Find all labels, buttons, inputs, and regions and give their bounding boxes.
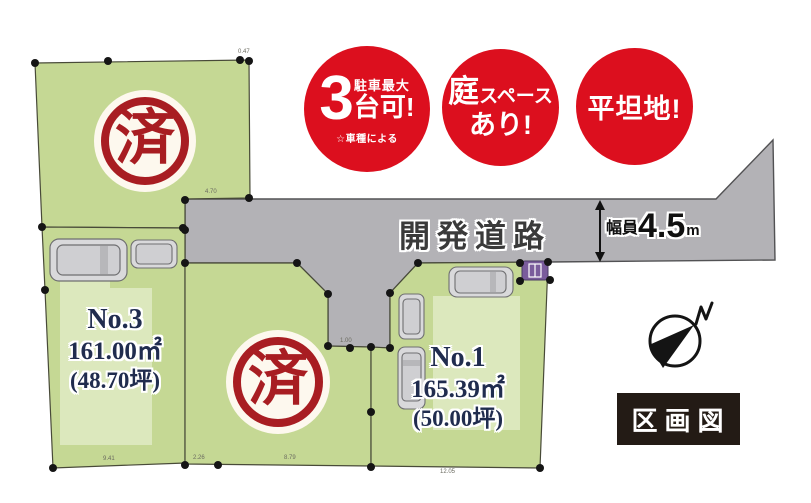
badge-parking-mid-text: 台可!	[354, 94, 415, 120]
lot-no3-id: No.3	[40, 303, 190, 337]
sold-stamp-text: 済	[115, 109, 175, 169]
compass-north-icon	[649, 303, 712, 368]
dimension-label: 8.79	[284, 455, 296, 461]
road-name-label: 開発道路	[399, 211, 551, 256]
badge-garden-line2: あり!	[469, 112, 532, 139]
legend-title-box: 区画図	[617, 393, 740, 445]
badge-garden-kanji: 庭	[448, 76, 479, 107]
badge-flat-land-text: 平坦地!	[588, 87, 682, 126]
legend-title: 区画図	[631, 401, 730, 438]
utility-pole-marker	[522, 261, 548, 280]
road-width-prefix: 幅員	[606, 214, 638, 242]
lot-no1-id: No.1	[378, 341, 538, 375]
badge-parking-top-text: 駐車最大	[354, 79, 410, 92]
badge-flat-land: 平坦地!	[576, 48, 693, 165]
badge-parking-note: ☆車種による	[336, 130, 398, 145]
badge-parking: 3 駐車最大 台可! ☆車種による	[304, 46, 430, 172]
lot-no1-area-m2: 165.39㎡	[378, 375, 538, 405]
badge-garden: 庭 スペース あり!	[442, 49, 559, 166]
badge-parking-count: 3	[319, 73, 351, 126]
road-width-value: 4.5	[638, 211, 685, 242]
road-width-label: 幅員 4.5 m	[606, 211, 700, 242]
badge-garden-kana: スペース	[479, 87, 553, 106]
lot-map: 3 駐車最大 台可! ☆車種による 庭 スペース あり! 平坦地! 開発道路 幅…	[0, 0, 811, 503]
dimension-label: 9.41	[103, 456, 115, 462]
dimension-label: 2.26	[193, 455, 205, 461]
dimension-label: 0.47	[238, 49, 250, 55]
car-icon	[131, 240, 177, 268]
car-icon	[449, 267, 513, 297]
dimension-label: 12.05	[440, 469, 455, 475]
lot-no3-area-tsubo: (48.70坪)	[40, 367, 190, 395]
dimension-label: 4.70	[205, 189, 217, 195]
lot-no3-area-m2: 161.00㎡	[40, 337, 190, 367]
lot-no1-area-tsubo: (50.00坪)	[378, 405, 538, 433]
lot-no3-label: No.3 161.00㎡ (48.70坪)	[40, 303, 190, 394]
road-width-unit: m	[686, 222, 699, 242]
dimension-label: 1.00	[340, 338, 352, 344]
sold-stamp-text: 済	[248, 350, 308, 410]
car-icon	[399, 294, 424, 339]
car-icon	[50, 239, 127, 281]
lot-no1-label: No.1 165.39㎡ (50.00坪)	[378, 341, 538, 432]
